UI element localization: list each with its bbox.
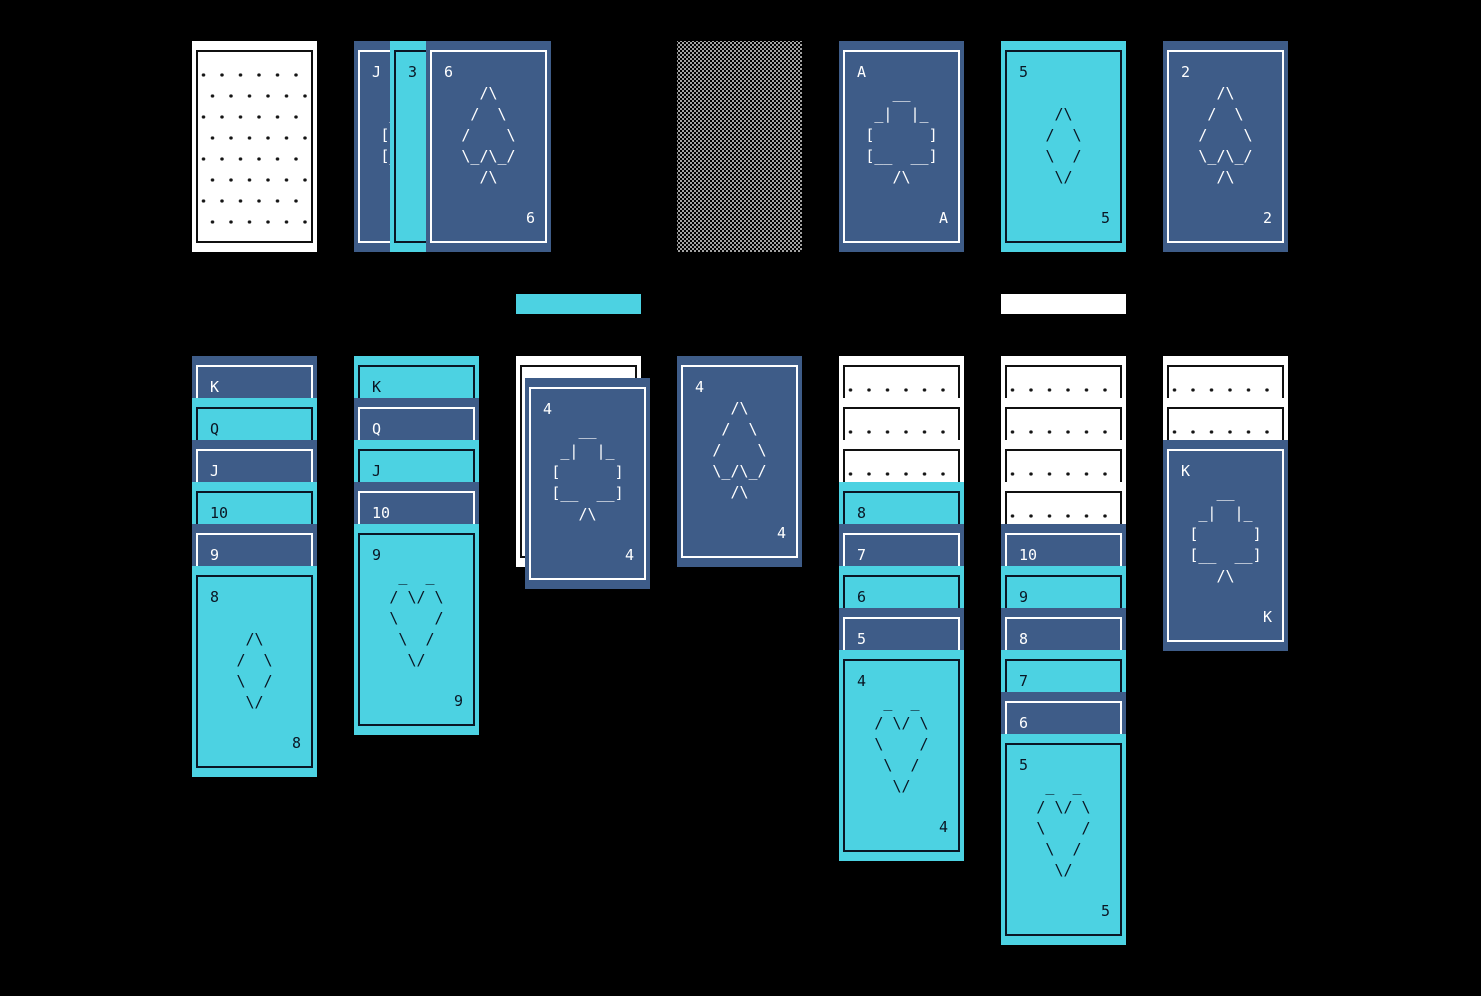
tableau-column-5: 8877665544 _ _ / \/ \ \ / \ / \/ <box>839 356 973 996</box>
card-rank-bottom: 8 <box>292 733 301 754</box>
card-rank-top: 3 <box>408 62 417 83</box>
card-rank-bottom: 6 <box>526 208 535 229</box>
card-rank-top: 10 <box>372 503 390 524</box>
hearts-art-icon: _ _ / \/ \ \ / \ / \/ <box>1001 776 1126 881</box>
card-rank-top: 5 <box>857 629 866 650</box>
card-rank-top: A <box>857 62 866 83</box>
card-rank-top: 9 <box>210 545 219 566</box>
clubs-art-icon: __ _| |_ [ ] [__ __] /\ <box>1163 482 1288 587</box>
diamonds-art-icon: /\ / \ \ / \/ <box>192 629 317 713</box>
card-rank-top: 7 <box>1019 671 1028 692</box>
spades-art-icon: /\ / \ / \ \_/\_/ /\ <box>1163 83 1288 188</box>
foundation-pile-4: 22 /\ / \ / \ \_/\_/ /\ <box>1163 41 1288 252</box>
foundation-pile-2: AA __ _| |_ [ ] [__ __] /\ <box>839 41 964 252</box>
card-rank-bottom: 4 <box>625 545 634 566</box>
card-k-clubs[interactable]: KK __ _| |_ [ ] [__ __] /\ <box>1163 440 1288 651</box>
card-4-spades[interactable]: 44 /\ / \ / \ \_/\_/ /\ <box>677 356 802 567</box>
foundation-empty-slot[interactable] <box>677 41 802 252</box>
card-8-diamonds[interactable]: 88 /\ / \ \ / \/ <box>192 566 317 777</box>
card-rank-top: 4 <box>543 399 552 420</box>
card-rank-bottom: 2 <box>1263 208 1272 229</box>
card-rank-bottom: 5 <box>1101 208 1110 229</box>
card-rank-top: 7 <box>857 545 866 566</box>
diamonds-art-icon: /\ / \ \ / \/ <box>1001 104 1126 188</box>
card-5-diamonds[interactable]: 55 /\ / \ \ / \/ <box>1001 41 1126 252</box>
card-rank-top: 8 <box>1019 629 1028 650</box>
card-rank-bottom: 5 <box>1101 901 1110 922</box>
card-rank-top: J <box>210 461 219 482</box>
tableau-column-7: KK __ _| |_ [ ] [__ __] /\ <box>1163 356 1297 996</box>
foundation-pile-1 <box>677 41 802 252</box>
card-5-hearts[interactable]: 55 _ _ / \/ \ \ / \ / \/ <box>1001 734 1126 945</box>
card-rank-top: 10 <box>1019 545 1037 566</box>
tableau-column-1: KKQQJJ10109988 /\ / \ \ / \/ <box>192 356 326 996</box>
card-rank-top: 6 <box>1019 713 1028 734</box>
waste-pile: JJ __ _| |_ [ ] [__ __] /\ 3366 /\ / \ /… <box>354 41 551 252</box>
card-rank-top: J <box>372 62 381 83</box>
white-bar <box>1001 294 1126 314</box>
clubs-art-icon: __ _| |_ [ ] [__ __] /\ <box>525 420 650 525</box>
card-rank-top: 10 <box>210 503 228 524</box>
card-6-spades[interactable]: 66 /\ / \ / \ \_/\_/ /\ <box>426 41 551 252</box>
card-rank-bottom: K <box>1263 607 1272 628</box>
card-2-spades[interactable]: 22 /\ / \ / \ \_/\_/ /\ <box>1163 41 1288 252</box>
tableau-column-3: 44 __ _| |_ [ ] [__ __] /\ <box>516 356 650 996</box>
card-4-hearts[interactable]: 44 _ _ / \/ \ \ / \ / \/ <box>839 650 964 861</box>
card-a-clubs[interactable]: AA __ _| |_ [ ] [__ __] /\ <box>839 41 964 252</box>
card-rank-bottom: A <box>939 208 948 229</box>
card-rank-top: Q <box>372 419 381 440</box>
card-rank-bottom: 4 <box>777 523 786 544</box>
card-rank-top: 6 <box>857 587 866 608</box>
hearts-art-icon: _ _ / \/ \ \ / \ / \/ <box>354 566 479 671</box>
card-9-hearts[interactable]: 99 _ _ / \/ \ \ / \ / \/ <box>354 524 479 735</box>
foundation-pile-3: 55 /\ / \ \ / \/ <box>1001 41 1126 252</box>
cyan-bar <box>516 294 641 314</box>
card-rank-top: 6 <box>444 62 453 83</box>
hearts-art-icon: _ _ / \/ \ \ / \ / \/ <box>839 692 964 797</box>
card-rank-top: 9 <box>372 545 381 566</box>
tableau-column-4: 44 /\ / \ / \ \_/\_/ /\ <box>677 356 811 996</box>
tableau-column-6: 10109988776655 _ _ / \/ \ \ / \ / \/ <box>1001 356 1135 996</box>
stock-pile <box>192 41 317 252</box>
card-rank-top: 5 <box>1019 62 1028 83</box>
facedown-card[interactable] <box>192 41 317 252</box>
solitaire-board: JJ __ _| |_ [ ] [__ __] /\ 3366 /\ / \ /… <box>0 0 1481 987</box>
card-rank-top: Q <box>210 419 219 440</box>
card-rank-top: K <box>210 377 219 398</box>
tableau-column-2: KKQQJJ101099 _ _ / \/ \ \ / \ / \/ <box>354 356 488 996</box>
card-rank-bottom: 9 <box>454 691 463 712</box>
card-rank-top: 8 <box>857 503 866 524</box>
card-rank-top: 2 <box>1181 62 1190 83</box>
clubs-art-icon: __ _| |_ [ ] [__ __] /\ <box>839 83 964 188</box>
card-rank-top: 4 <box>695 377 704 398</box>
card-rank-top: J <box>372 461 381 482</box>
card-rank-top: K <box>372 377 381 398</box>
card-4-clubs[interactable]: 44 __ _| |_ [ ] [__ __] /\ <box>525 378 650 589</box>
spades-art-icon: /\ / \ / \ \_/\_/ /\ <box>677 398 802 503</box>
card-rank-top: 9 <box>1019 587 1028 608</box>
card-rank-top: K <box>1181 461 1190 482</box>
card-rank-top: 8 <box>210 587 219 608</box>
spades-art-icon: /\ / \ / \ \_/\_/ /\ <box>426 83 551 188</box>
card-rank-bottom: 4 <box>939 817 948 838</box>
card-border <box>196 50 313 243</box>
card-rank-top: 5 <box>1019 755 1028 776</box>
card-rank-top: 4 <box>857 671 866 692</box>
